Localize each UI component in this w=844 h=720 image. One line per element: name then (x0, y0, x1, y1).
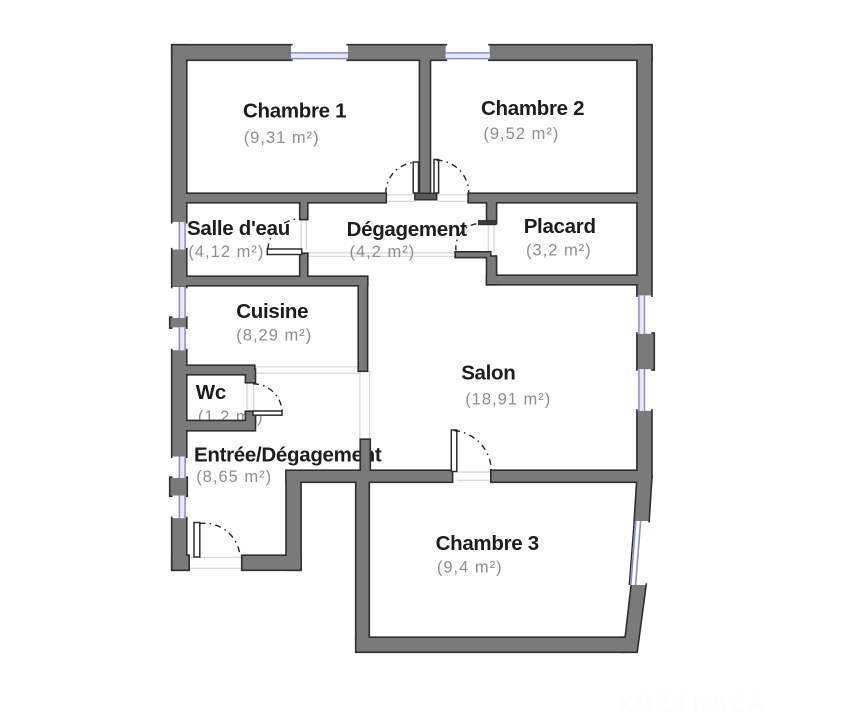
svg-text:Placard: Placard (524, 215, 596, 238)
svg-text:KOZIKAZA: KOZIKAZA (618, 690, 767, 715)
svg-text:Salle d'eau: Salle d'eau (187, 217, 290, 240)
svg-text:(8,29 m²): (8,29 m²) (236, 326, 312, 344)
svg-text:(9,31 m²): (9,31 m²) (244, 129, 320, 147)
svg-text:(4,12 m²): (4,12 m²) (188, 243, 264, 261)
svg-text:(4,2 m²): (4,2 m²) (350, 243, 416, 261)
svg-text:Dégagement: Dégagement (347, 218, 468, 241)
svg-text:Chambre 2: Chambre 2 (481, 97, 584, 120)
svg-text:Chambre 1: Chambre 1 (243, 100, 346, 123)
svg-text:Cuisine: Cuisine (236, 300, 308, 323)
svg-text:Chambre 3: Chambre 3 (436, 532, 539, 555)
svg-text:Wc: Wc (196, 381, 226, 404)
svg-text:Salon: Salon (461, 362, 515, 385)
svg-text:(18,91 m²): (18,91 m²) (465, 390, 551, 408)
svg-text:Entrée/Dégagement: Entrée/Dégagement (194, 443, 382, 466)
svg-text:(3,2 m²): (3,2 m²) (526, 241, 592, 259)
svg-text:(9,52 m²): (9,52 m²) (483, 125, 559, 143)
svg-text:(8,65 m²): (8,65 m²) (196, 468, 272, 486)
svg-text:(9,4 m²): (9,4 m²) (437, 559, 503, 577)
